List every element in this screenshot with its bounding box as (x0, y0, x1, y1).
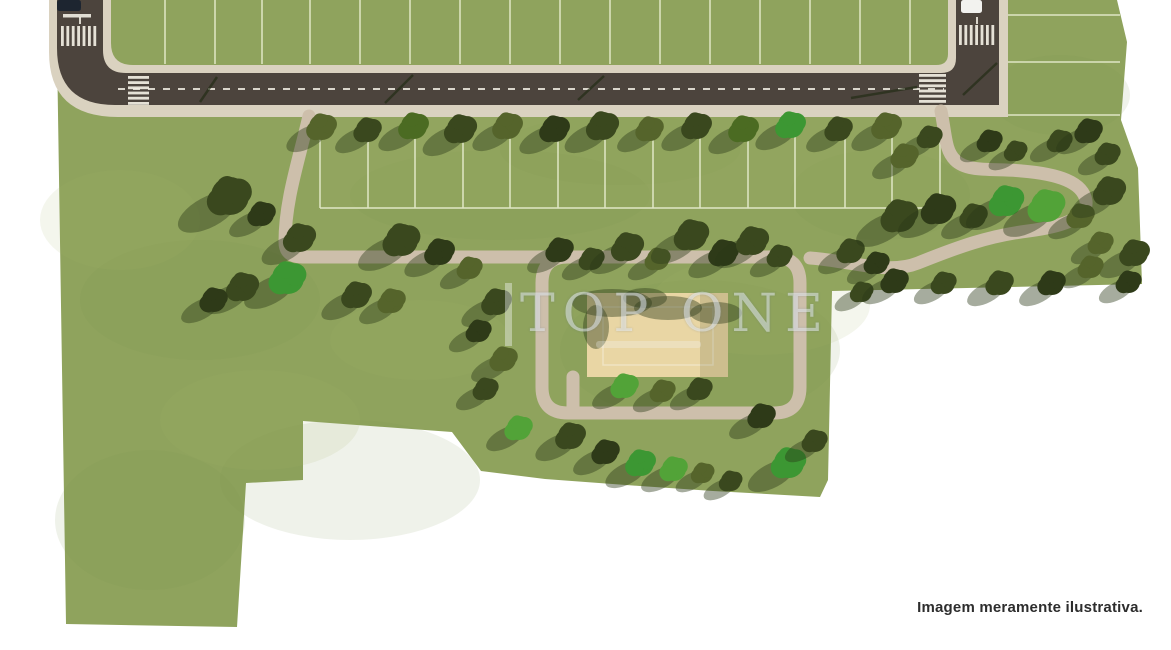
grass-texture-patch (55, 450, 245, 590)
watermark-subtext-bar (596, 341, 701, 348)
car (57, 0, 81, 11)
grass-texture-patch (160, 370, 360, 470)
grass-texture-patch (990, 55, 1130, 135)
watermark: TOP ONE (520, 284, 831, 344)
site-plan-illustration: TOP ONE Imagem meramente ilustrativa. (0, 0, 1171, 650)
disclaimer-caption: Imagem meramente ilustrativa. (917, 599, 1143, 616)
car (961, 0, 982, 13)
stop-line (63, 14, 91, 18)
watermark-logo-bar (505, 283, 512, 346)
grass-texture-patch (40, 170, 200, 270)
